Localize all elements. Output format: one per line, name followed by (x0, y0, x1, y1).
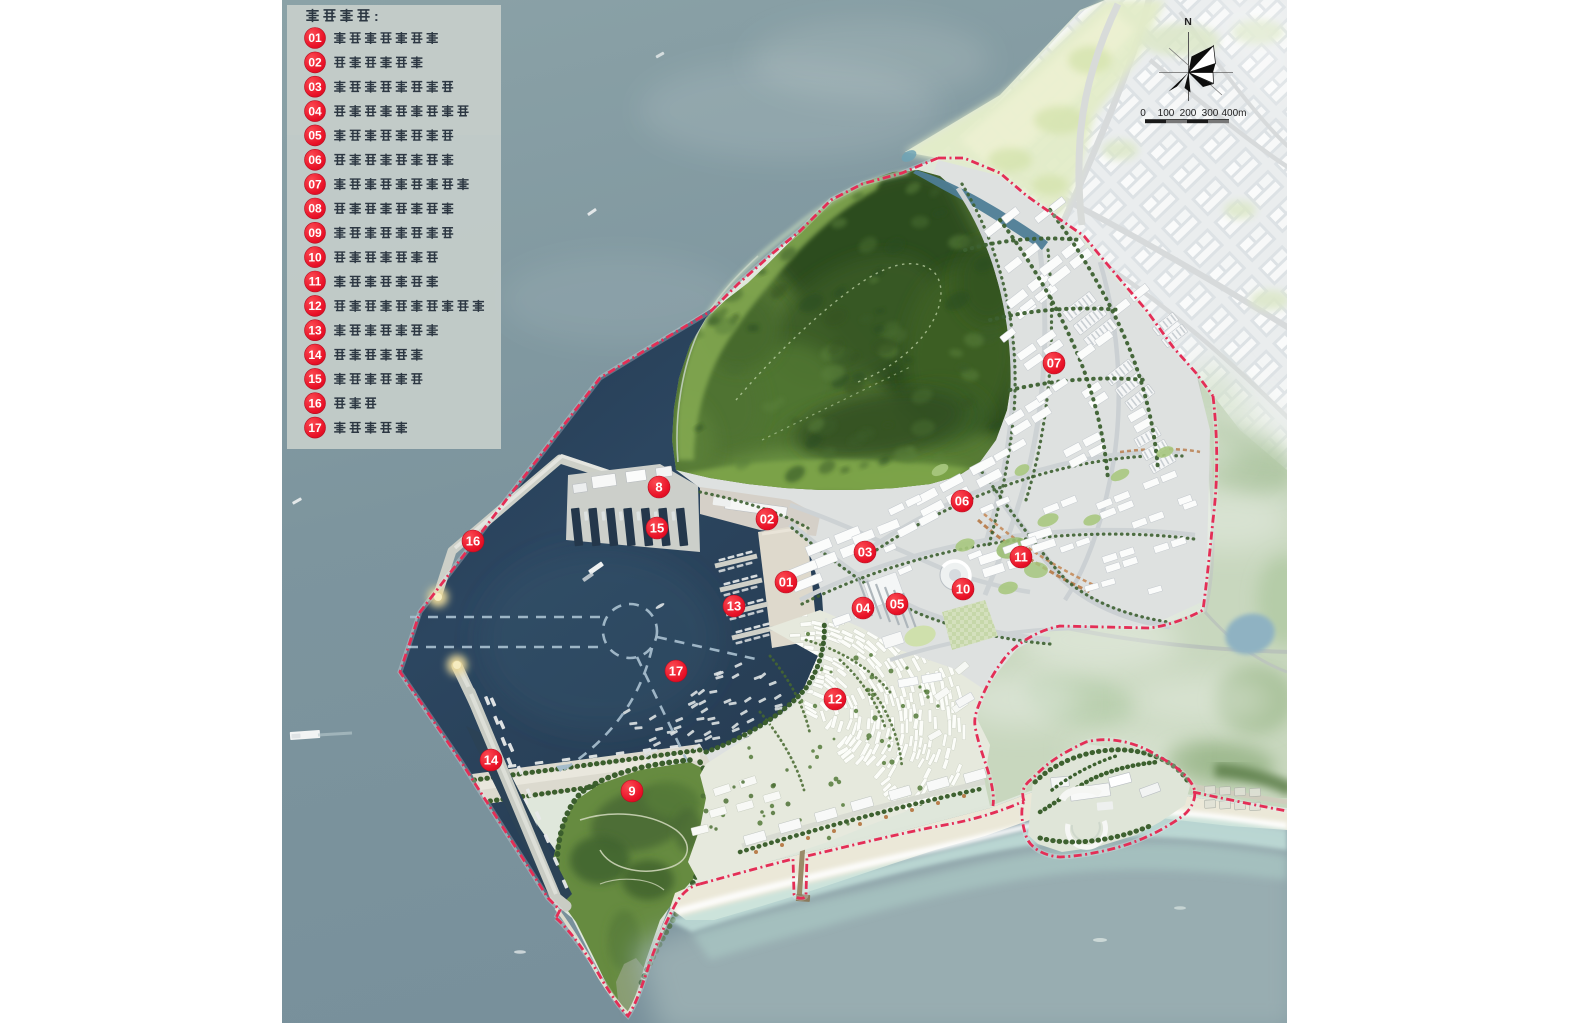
svg-text:05: 05 (308, 129, 322, 143)
svg-text:12: 12 (308, 299, 322, 313)
svg-text:8: 8 (655, 480, 662, 495)
svg-text:15: 15 (308, 372, 322, 386)
svg-text:08: 08 (308, 202, 322, 216)
svg-text:15: 15 (650, 521, 664, 536)
svg-text:N: N (1184, 16, 1192, 28)
svg-text:11: 11 (1014, 550, 1028, 565)
svg-text:07: 07 (1047, 356, 1061, 371)
svg-text:14: 14 (308, 348, 322, 362)
svg-text:05: 05 (890, 597, 904, 612)
svg-text:03: 03 (308, 80, 322, 94)
svg-text:10: 10 (308, 250, 322, 264)
svg-text:13: 13 (308, 323, 322, 337)
svg-text::: : (374, 8, 379, 24)
svg-text:09: 09 (308, 226, 322, 240)
svg-text:03: 03 (858, 545, 872, 560)
svg-text:14: 14 (484, 753, 499, 768)
svg-text:02: 02 (760, 512, 774, 527)
svg-text:04: 04 (308, 104, 322, 118)
svg-text:07: 07 (308, 177, 322, 191)
svg-text:02: 02 (308, 56, 322, 70)
svg-text:06: 06 (308, 153, 322, 167)
svg-text:01: 01 (779, 575, 793, 590)
svg-text:16: 16 (466, 534, 480, 549)
svg-text:9: 9 (628, 784, 635, 799)
svg-text:06: 06 (955, 494, 969, 509)
svg-text:10: 10 (956, 582, 970, 597)
svg-text:11: 11 (309, 275, 322, 289)
svg-text:0: 0 (1140, 108, 1146, 119)
svg-text:400m: 400m (1221, 108, 1246, 119)
svg-text:17: 17 (669, 664, 683, 679)
svg-text:17: 17 (308, 421, 322, 435)
svg-text:200: 200 (1180, 108, 1197, 119)
svg-text:16: 16 (308, 396, 322, 410)
svg-text:100: 100 (1158, 108, 1175, 119)
svg-text:12: 12 (828, 692, 842, 707)
svg-text:01: 01 (308, 31, 322, 45)
svg-text:04: 04 (856, 601, 871, 616)
svg-text:13: 13 (727, 599, 741, 614)
svg-text:300: 300 (1202, 108, 1219, 119)
